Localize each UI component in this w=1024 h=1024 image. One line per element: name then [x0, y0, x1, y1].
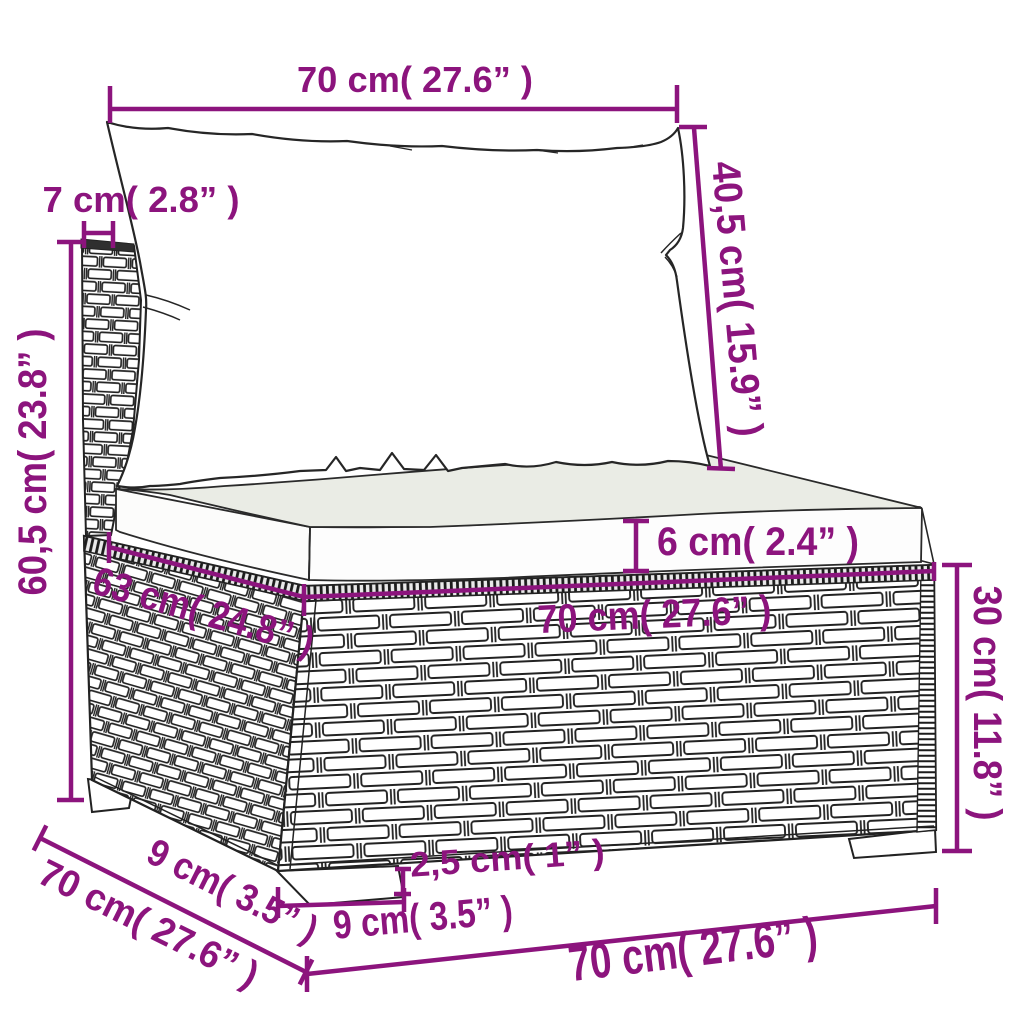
svg-text:6 cm( 2.4” ): 6 cm( 2.4” ): [657, 520, 859, 564]
svg-text:70 cm( 27.6” ): 70 cm( 27.6” ): [297, 59, 533, 100]
svg-text:30 cm( 11.8” ): 30 cm( 11.8” ): [965, 586, 1009, 821]
svg-text:7 cm( 2.8” ): 7 cm( 2.8” ): [43, 179, 240, 220]
svg-text:60,5 cm( 23.8” ): 60,5 cm( 23.8” ): [11, 329, 55, 596]
